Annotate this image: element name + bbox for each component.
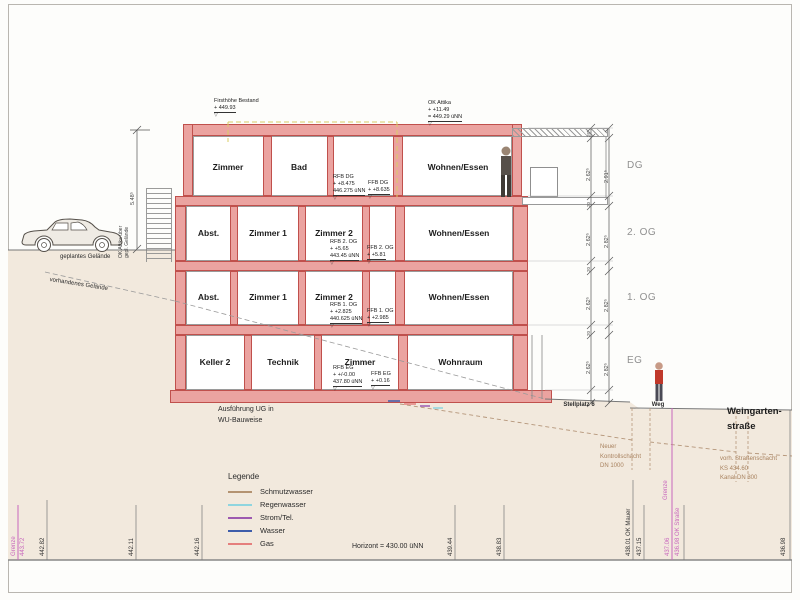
level-annotation-rfb-2og: RFB 2. OG + +5.65 443.45 üNN ▽ xyxy=(330,239,359,266)
wall xyxy=(298,206,306,261)
annotation-ok-attika: OK Attika + +11.49 = 449.29 üNN ▽ xyxy=(428,100,462,127)
wall xyxy=(230,271,238,325)
bottom-label-437-06: 437.06 xyxy=(665,538,671,556)
dim-dg-outer: 2.62⁵ xyxy=(586,168,592,181)
label-ausfuehrung: Ausführung UG in WU-Bauweise xyxy=(218,405,274,426)
room-label-1og-zimmer2: Zimmer 2 xyxy=(306,292,362,302)
label-weingartenstrasse: Weingarten- straße xyxy=(727,404,782,434)
wall xyxy=(175,271,186,325)
room-label-dg-wohnen: Wohnen/Essen xyxy=(403,162,513,172)
dim-2og-inner: 2.82⁵ xyxy=(604,235,610,248)
dim-slab: 20 xyxy=(586,202,591,207)
wall xyxy=(175,335,186,390)
legend-item-strom-tel: Strom/Tel. xyxy=(228,511,313,524)
room-label-dg-bad: Bad xyxy=(270,162,328,172)
label-horizont: Horizont = 430.00 üNN xyxy=(352,543,423,550)
bottom-label-442-82: 442.82 xyxy=(40,538,46,556)
room-label-eg-wohnraum: Wohnraum xyxy=(408,357,513,367)
bottom-label-442-16: 442.16 xyxy=(195,538,201,556)
floor-label-1og: 1. OG xyxy=(627,292,656,303)
wall xyxy=(395,271,405,325)
wall xyxy=(393,136,403,196)
roof-terrace-slab xyxy=(522,197,608,205)
level-annotation-rfb-eg: RFB EG + +/-0.00 437.80 üNN ▽ xyxy=(333,365,362,392)
room-label-2og-wohnen: Wohnen/Essen xyxy=(405,228,513,238)
floor-label-dg: DG xyxy=(627,160,643,171)
level-symbol: ▽ xyxy=(371,386,391,391)
dim-eg-inner: 2.82⁵ xyxy=(604,363,610,376)
dim-2og-outer: 2.62⁵ xyxy=(586,233,592,246)
bottom-label-443-72: 443.72 xyxy=(20,538,26,556)
label-strassenschacht: vorh. Straßenschacht KS 434.60 Kanal DN … xyxy=(720,455,777,484)
wall xyxy=(244,335,252,390)
wall xyxy=(398,335,408,390)
level-symbol: ▽ xyxy=(333,387,362,392)
level-symbol: ▽ xyxy=(367,323,394,328)
person-figure-roof xyxy=(496,146,516,198)
wall xyxy=(230,206,238,261)
wall xyxy=(513,271,528,325)
label-weg: Weg xyxy=(642,402,674,408)
dim-attika-height: 5.48⁵ xyxy=(130,192,136,205)
level-annotation-ffb-1og: FFB 1. OG + +2.985 ▽ xyxy=(367,308,394,328)
room-label-1og-abst: Abst. xyxy=(186,292,231,302)
architectural-section-drawing: Zimmer Bad Wohnen/Essen Abst. Zimmer 1 Z… xyxy=(0,0,800,600)
room-label-dg-zimmer: Zimmer xyxy=(192,162,264,172)
bottom-label-438-83: 438.83 xyxy=(497,538,503,556)
wall xyxy=(395,206,405,261)
wall xyxy=(175,206,186,261)
bottom-label-439-44: 439.44 xyxy=(448,538,454,556)
level-symbol: ▽ xyxy=(214,113,259,118)
room-label-2og-zimmer2: Zimmer 2 xyxy=(306,228,362,238)
wasser-line-swatch xyxy=(228,530,252,532)
exterior-stair-hatch xyxy=(146,188,172,262)
roof-slab xyxy=(183,124,522,136)
car-drawing xyxy=(18,212,126,254)
room-label-1og-zimmer1: Zimmer 1 xyxy=(238,292,298,302)
level-symbol: ▽ xyxy=(367,260,394,265)
room-label-2og-abst: Abst. xyxy=(186,228,231,238)
dim-1og-outer: 2.62⁵ xyxy=(586,297,592,310)
legend: Legende Schmutzwasser Regenwasser Strom/… xyxy=(228,472,313,550)
level-symbol: ▽ xyxy=(333,196,365,201)
bottom-label-436-98: 436.98 xyxy=(781,538,787,556)
annotation-firsthoehe: Firsthöhe Bestand + 449.93 ▽ xyxy=(214,98,259,118)
dim-eg-outer: 2.62⁵ xyxy=(586,361,592,374)
wall xyxy=(513,335,528,390)
dim-dg-inner: 2.91⁵ xyxy=(604,170,610,183)
room-label-eg-keller: Keller 2 xyxy=(186,357,244,367)
wall xyxy=(513,206,528,261)
annotation-ok-attika-left: OK Attika über gepl. Gelände xyxy=(118,226,130,258)
dim-slab: 20 xyxy=(586,331,591,336)
bottom-label-ok-mauer: 438.01 OK Mauer xyxy=(626,509,632,556)
legend-item-wasser: Wasser xyxy=(228,524,313,537)
floor-label-2og: 2. OG xyxy=(627,227,656,238)
terrace-railing-hatch xyxy=(512,128,608,137)
bottom-label-442-11: 442.11 xyxy=(129,538,135,556)
wall xyxy=(183,124,193,196)
adjacent-roof-box xyxy=(530,167,558,197)
room-label-1og-wohnen: Wohnen/Essen xyxy=(405,292,513,302)
label-geplantes-gelaende: geplantes Gelände xyxy=(60,254,110,260)
dim-slab: 20 xyxy=(586,267,591,272)
person-figure-street xyxy=(650,362,668,402)
room-label-eg-technik: Technik xyxy=(252,357,314,367)
dim-1og-inner: 2.82⁵ xyxy=(604,299,610,312)
level-annotation-rfb-1og: RFB 1. OG + +2.825 440.625 üNN ▽ xyxy=(330,302,362,329)
level-symbol: ▽ xyxy=(428,122,462,127)
legend-item-regenwasser: Regenwasser xyxy=(228,498,313,511)
bottom-label-grenze-left: Grenze xyxy=(11,536,17,556)
wall xyxy=(298,271,306,325)
bottom-label-ok-strasse: 436.98 OK Straße xyxy=(675,508,681,556)
bottom-label-437-15: 437.15 xyxy=(637,538,643,556)
regenwasser-line-swatch xyxy=(228,504,252,506)
dim-slab: 26 xyxy=(586,132,591,137)
legend-title: Legende xyxy=(228,472,313,481)
level-annotation-rfb-dg: RFB DG + +8.475 446.275 üNN ▽ xyxy=(333,174,365,201)
label-stellplatz: Stellplatz 6 xyxy=(548,402,610,408)
strom-tel-line-swatch xyxy=(228,517,252,519)
wall xyxy=(314,335,322,390)
level-symbol: ▽ xyxy=(330,261,359,266)
level-symbol: ▽ xyxy=(368,195,390,200)
legend-item-gas: Gas xyxy=(228,537,313,550)
bottom-label-grenze-right: Grenze xyxy=(663,480,669,500)
gas-line-swatch xyxy=(228,543,252,545)
legend-item-schmutzwasser: Schmutzwasser xyxy=(228,485,313,498)
level-annotation-ffb-2og: FFB 2. OG + +5.81 ▽ xyxy=(367,245,394,265)
floor-label-eg: EG xyxy=(627,355,642,366)
schmutzwasser-line-swatch xyxy=(228,491,252,493)
level-symbol: ▽ xyxy=(330,324,362,329)
level-annotation-ffb-dg: FFB DG + +8.635 ▽ xyxy=(368,180,390,200)
level-annotation-ffb-eg: FFB EG + +0.16 ▽ xyxy=(371,371,391,391)
room-label-2og-zimmer1: Zimmer 1 xyxy=(238,228,298,238)
label-kontrollschacht: Neuer Kontrollschacht DN 1000 xyxy=(600,443,641,472)
